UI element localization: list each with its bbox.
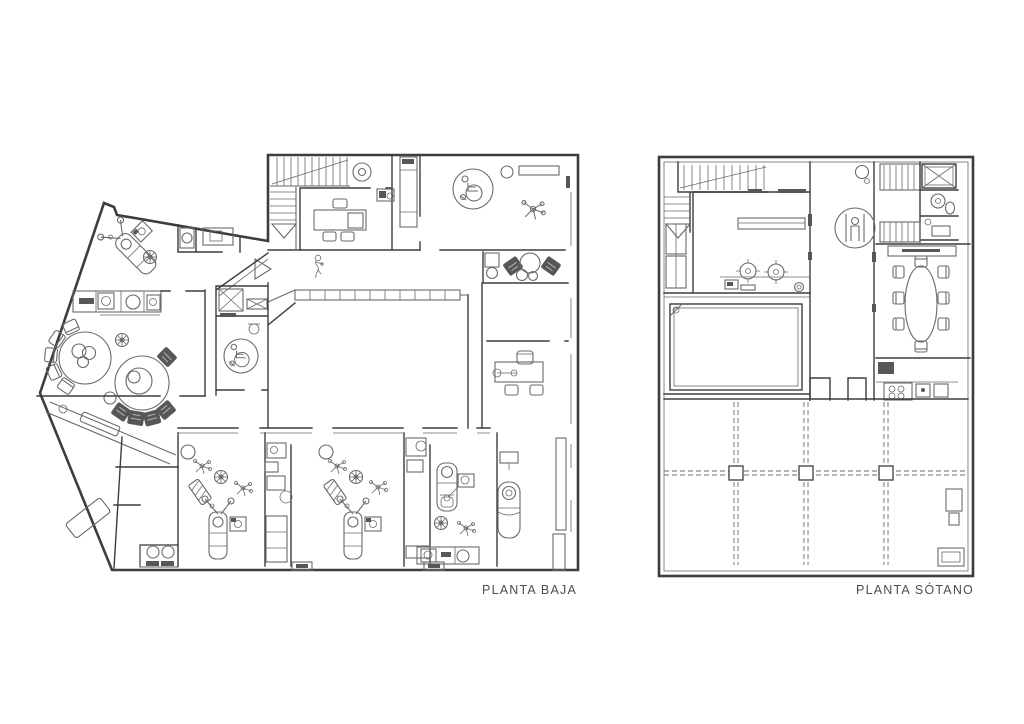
stool — [350, 471, 363, 484]
southwest-rooms — [65, 437, 178, 568]
meeting-chair — [938, 318, 949, 330]
stool — [435, 517, 448, 530]
plant-icon — [522, 201, 545, 220]
person-icon — [315, 255, 323, 278]
column — [879, 466, 893, 480]
treatment-room-3 — [435, 463, 476, 536]
cabinet — [323, 479, 347, 506]
column-symbol — [353, 163, 371, 181]
wheelchair-icon — [230, 344, 249, 367]
stairs-basement — [664, 162, 768, 238]
desk — [495, 362, 543, 382]
floor-plan-planta-baja: PLANTA BAJA — [37, 155, 578, 597]
desk-chair — [333, 199, 347, 208]
stair-arrow-west — [255, 259, 271, 279]
elevator-circle — [835, 208, 875, 248]
waiting-chair-dark — [127, 410, 145, 427]
door-pivot — [856, 166, 869, 179]
accessible-zone-circle — [453, 169, 493, 209]
toilet — [932, 226, 950, 236]
round-rug — [115, 356, 169, 410]
accessible-circle — [224, 339, 258, 373]
instrument-arm-icon — [458, 522, 476, 537]
toilet — [946, 202, 955, 214]
shelf — [738, 218, 805, 229]
meeting-chair — [893, 266, 904, 278]
label-planta-baja: PLANTA BAJA — [482, 583, 577, 597]
xray-room — [498, 438, 566, 570]
instrument-arm-icon — [194, 460, 212, 475]
treatment-room-1 — [181, 445, 253, 559]
floor-plan-planta-sotano: PLANTA SÓTANO — [659, 157, 974, 597]
column — [729, 466, 743, 480]
instrument-arm-icon — [235, 482, 253, 497]
meeting-room — [876, 244, 970, 358]
inner-wall-line — [664, 162, 968, 571]
treatment-rooms-south — [178, 433, 566, 570]
accessible-wc — [224, 324, 260, 373]
dental-chair — [337, 496, 381, 559]
floor-inset — [670, 304, 802, 390]
meeting-chair — [915, 256, 927, 267]
meeting-chair — [893, 292, 904, 304]
armchair — [540, 256, 561, 277]
xray-chair — [498, 482, 520, 538]
door-recess — [946, 489, 962, 511]
meeting-chair — [938, 266, 949, 278]
patient-chair — [437, 463, 457, 511]
entrance-hall — [453, 166, 571, 532]
stool — [144, 251, 157, 264]
treatment-room-nw — [96, 206, 240, 282]
floor-plan-drawing: PLANTA BAJA — [0, 0, 1024, 724]
cabinet — [188, 479, 212, 506]
services-block — [880, 162, 958, 242]
stool — [116, 334, 129, 347]
stairs-main — [270, 157, 350, 250]
fridge — [878, 362, 894, 374]
label-planta-sotano: PLANTA SÓTANO — [856, 582, 974, 597]
sterilization-strip-2 — [406, 438, 430, 558]
instrument-arm-icon — [370, 481, 388, 496]
staff-room — [664, 189, 810, 297]
meeting-chair — [915, 341, 927, 352]
dental-chair — [202, 496, 246, 559]
reception-counter — [268, 290, 468, 302]
sink — [126, 295, 140, 309]
waiting-chair-dark — [156, 346, 177, 367]
door-leaf — [553, 534, 565, 570]
waiting-chair — [57, 377, 75, 395]
stool — [215, 471, 228, 484]
waiting-area — [37, 319, 205, 427]
elevator-person-icon — [846, 214, 864, 242]
bathroom-2 — [925, 219, 950, 236]
meeting-table — [905, 266, 937, 342]
wheelchair-icon — [461, 176, 483, 201]
bench — [65, 497, 111, 538]
meeting-chair — [893, 318, 904, 330]
cabinet-strip — [400, 157, 417, 227]
meeting-chair — [938, 292, 949, 304]
elevator-block — [216, 286, 268, 395]
sink — [931, 194, 945, 208]
consultation-room — [482, 283, 568, 428]
lounge-seating — [483, 252, 568, 283]
shelf — [519, 166, 559, 175]
treatment-room-2 — [319, 445, 388, 559]
basement-corridor — [808, 162, 876, 400]
sink — [249, 324, 259, 334]
stair-direction-arrow — [272, 224, 296, 238]
column — [799, 466, 813, 480]
instrument-arm-icon — [329, 460, 347, 475]
side-table — [485, 253, 499, 267]
round-table — [736, 259, 760, 283]
sterilization-strip-1 — [265, 443, 292, 562]
round-table — [764, 260, 788, 284]
structural-grid — [664, 402, 968, 566]
kitchen — [876, 362, 958, 400]
floor-plan-sheet: PLANTA BAJA — [0, 0, 1024, 724]
bathroom-1 — [931, 194, 955, 214]
